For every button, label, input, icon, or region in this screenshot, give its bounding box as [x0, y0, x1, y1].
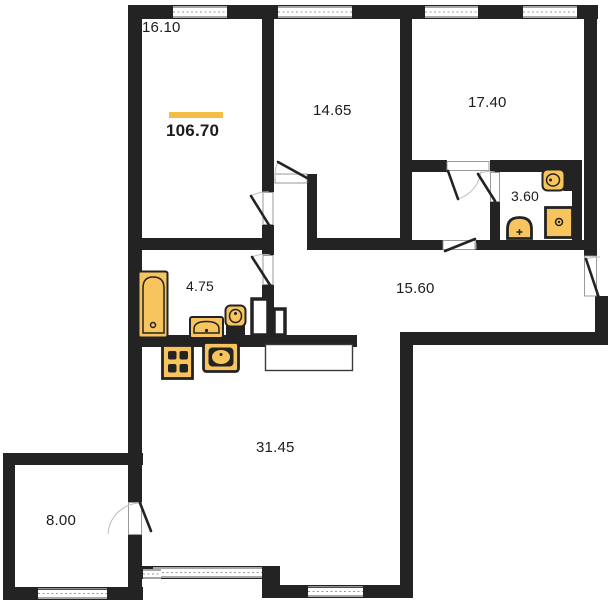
- door-balcony: [108, 502, 151, 535]
- toilet-horizontal-icon: [543, 170, 577, 192]
- toilet-icon: [226, 306, 246, 339]
- wardrobe-outline: [266, 345, 353, 371]
- window-top-right-room-1: [425, 6, 478, 18]
- small-sink-icon: [508, 218, 532, 239]
- area-label-bathroom: 4.75: [186, 279, 214, 294]
- bathtub-icon: [139, 272, 168, 338]
- total-area-label: 106.70: [166, 122, 219, 141]
- stove-icon: [163, 346, 193, 379]
- sink-icon: [190, 317, 223, 338]
- floor-plan: 16.10 14.65 17.40 3.60 4.75 15.60 31.45 …: [0, 0, 610, 600]
- window-top-left-room: [173, 6, 227, 18]
- area-label-top-middle-room: 14.65: [313, 103, 352, 120]
- area-label-hallway: 15.60: [396, 281, 435, 298]
- area-label-living-kitchen: 31.45: [256, 440, 295, 457]
- area-label-top-left-room: 16.10: [142, 20, 181, 37]
- door-small-bathroom: [478, 172, 500, 202]
- window-balcony: [38, 589, 107, 600]
- duct-shaft-1: [252, 299, 268, 335]
- window-living-left: [153, 567, 262, 578]
- area-label-top-right-room: 17.40: [468, 95, 507, 112]
- door-top-middle-room: [275, 162, 307, 183]
- entrance-door: [585, 256, 601, 301]
- window-step-stub: [143, 569, 161, 579]
- walls: [3, 5, 608, 600]
- floor-plan-drawing: [0, 0, 610, 600]
- door-hallway-nook: [443, 239, 476, 251]
- duct-shafts: [252, 299, 285, 335]
- window-top-right-room-2: [523, 6, 577, 18]
- window-top-middle-room: [278, 6, 352, 18]
- area-label-balcony: 8.00: [46, 513, 76, 530]
- total-area-highlight-bar: [169, 112, 223, 118]
- duct-shaft-2: [274, 309, 285, 335]
- door-bathroom: [252, 254, 273, 285]
- window-living-right: [308, 587, 363, 598]
- door-top-left-room: [251, 192, 273, 225]
- kitchen-sink-icon: [204, 343, 239, 372]
- area-label-small-bathroom: 3.60: [511, 189, 539, 204]
- washing-machine-icon: [546, 208, 573, 238]
